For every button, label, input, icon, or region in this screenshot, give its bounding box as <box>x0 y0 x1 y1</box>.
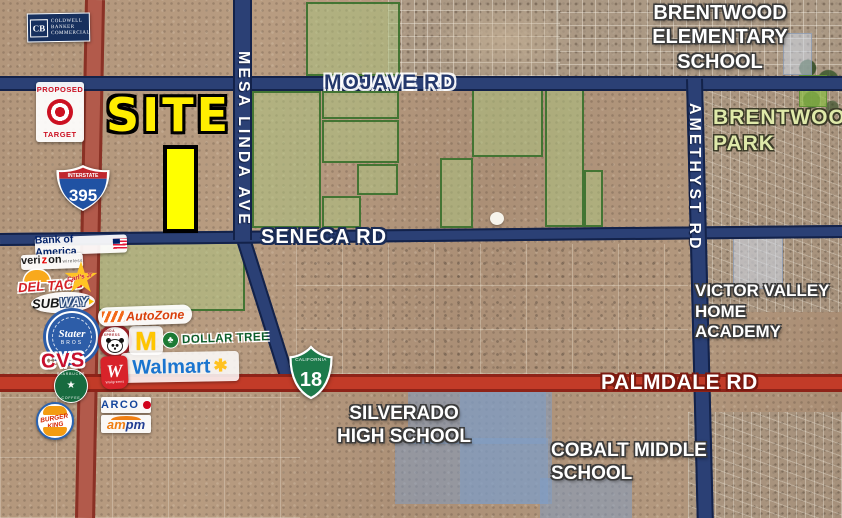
label-cobalt: COBALT MIDDLE SCHOOL <box>551 439 707 485</box>
rural-grid-area <box>296 244 688 374</box>
ca18-number-text: 18 <box>300 369 322 391</box>
starbucks-siren-icon: ★ <box>67 381 76 391</box>
water-tank-dot <box>490 212 504 225</box>
site-label: SITE <box>106 88 231 142</box>
road-label-mojave: MOJAVE RD <box>324 71 456 95</box>
ampm-logo: ampm <box>101 415 151 433</box>
highlighted-parcel <box>357 164 398 195</box>
road-label-palmdale: PALMDALE RD <box>601 371 758 395</box>
i395-banner-text: INTERSTATE <box>68 173 99 179</box>
site-parcel-marker <box>163 145 198 233</box>
walgreens-w-icon: W <box>106 361 123 380</box>
subway-arrow-icon <box>89 298 94 304</box>
highlighted-parcel <box>322 196 361 228</box>
mcdonalds-logo: M <box>129 326 163 355</box>
highlighted-parcel <box>252 91 321 228</box>
autozone-logo: AutoZone <box>98 304 193 326</box>
walgreens-logo: W Walgreens <box>100 355 129 389</box>
walmart-spark-icon: ✱ <box>213 356 228 376</box>
highlighted-parcel <box>306 2 400 76</box>
highlighted-parcel <box>322 91 399 119</box>
highlighted-parcel <box>440 158 473 228</box>
aerial-site-map: MOJAVE RD SENECA RD PALMDALE RD MESA LIN… <box>0 0 842 518</box>
label-brentwood-park: BRENTWOOD PARK <box>713 105 842 156</box>
mcdonalds-arches-icon: M <box>135 328 157 354</box>
i395-number-text: 395 <box>69 186 97 205</box>
coldwell-banker-logo: CB COLDWELL BANKER COMMERCIAL <box>27 12 90 42</box>
highlighted-parcel <box>545 85 584 227</box>
burger-king-bun-icon <box>43 427 67 436</box>
target-name: TARGET <box>43 130 76 139</box>
walmart-logo: Walmart ✱ <box>121 351 240 383</box>
coldwell-banker-mark-icon: CB <box>30 19 48 37</box>
label-silverado: SILVERADO HIGH SCHOOL <box>330 402 478 448</box>
highlighted-parcel <box>472 85 543 157</box>
arco-dot-icon <box>143 401 151 409</box>
bank-of-america-flag-icon <box>113 238 127 248</box>
ca18-state-text: CALIFORNIA <box>295 357 327 362</box>
road-label-seneca: SENECA RD <box>261 226 387 249</box>
target-proposed-text: PROPOSED <box>37 85 84 94</box>
carls-jr-logo: Carl's Jr <box>64 261 98 295</box>
starbucks-logo: STARBUCKS ★ COFFEE <box>54 369 88 403</box>
label-victor-valley: VICTOR VALLEY HOME ACADEMY <box>695 281 829 343</box>
ampm-arc-icon <box>111 416 141 420</box>
interstate-395-shield-icon: INTERSTATE 395 <box>54 164 112 212</box>
dirt-wash <box>430 0 580 80</box>
highlighted-parcel <box>322 120 399 163</box>
road-label-amethyst: AMETHYST RD <box>687 82 703 272</box>
ca-18-shield-icon: CALIFORNIA 18 <box>288 345 334 400</box>
label-brentwood-elementary: BRENTWOOD ELEMENTARY SCHOOL <box>630 1 810 74</box>
burger-king-logo: BURGER KING <box>36 402 74 440</box>
proposed-target-logo: PROPOSED TARGET <box>36 82 84 142</box>
autozone-stripes-icon <box>102 311 124 323</box>
coldwell-banker-text: COLDWELL BANKER COMMERCIAL <box>51 18 90 37</box>
highlighted-parcel <box>584 170 603 227</box>
target-bullseye-icon <box>47 99 73 125</box>
panda-face-icon <box>107 339 123 353</box>
arco-logo: ARCO <box>101 397 151 413</box>
road-label-mesa-linda: MESA LINDA AVE <box>234 44 252 234</box>
dollar-tree-icon: ♣ <box>162 331 180 349</box>
